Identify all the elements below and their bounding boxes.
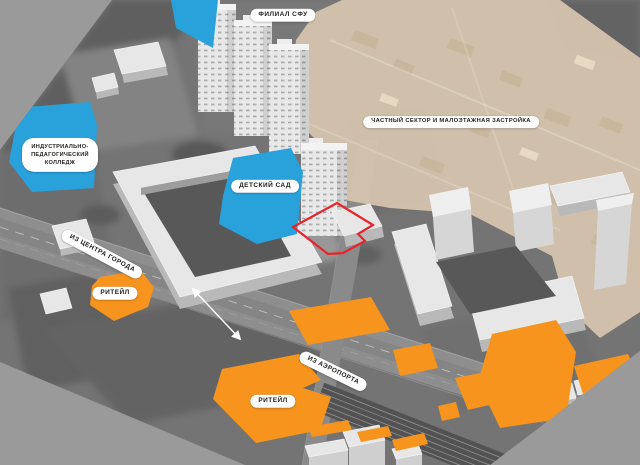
label-private-sector: ЧАСТНЫЙ СЕКТОР И МАЛОЭТАЖНАЯ ЗАСТРОЙКА	[363, 116, 539, 128]
label-college-line3: КОЛЛЕДЖ	[28, 159, 92, 167]
tower-2	[234, 15, 272, 136]
label-retail-west: РИТЕЙЛ	[92, 287, 137, 300]
retail-zone-east-2	[574, 354, 640, 422]
label-college-line2: ПЕДАГОГИЧЕСКИЙ	[28, 151, 92, 159]
retail-zone-east-1	[478, 320, 576, 428]
label-sfu-branch: ФИЛИАЛ СФУ	[250, 9, 315, 22]
label-kindergarten: ДЕТСКИЙ САД	[231, 180, 299, 193]
label-college-line1: ИНДУСТРИАЛЬНО-	[28, 143, 92, 151]
site-plan-diagram: ФИЛИАЛ СФУ ЧАСТНЫЙ СЕКТОР И МАЛОЭТАЖНАЯ …	[0, 0, 640, 465]
site-plan-canvas	[0, 0, 640, 465]
label-retail-south: РИТЕЙЛ	[250, 395, 295, 408]
label-college: ИНДУСТРИАЛЬНО- ПЕДАГОГИЧЕСКИЙ КОЛЛЕДЖ	[22, 138, 98, 172]
tower-3	[269, 39, 309, 154]
